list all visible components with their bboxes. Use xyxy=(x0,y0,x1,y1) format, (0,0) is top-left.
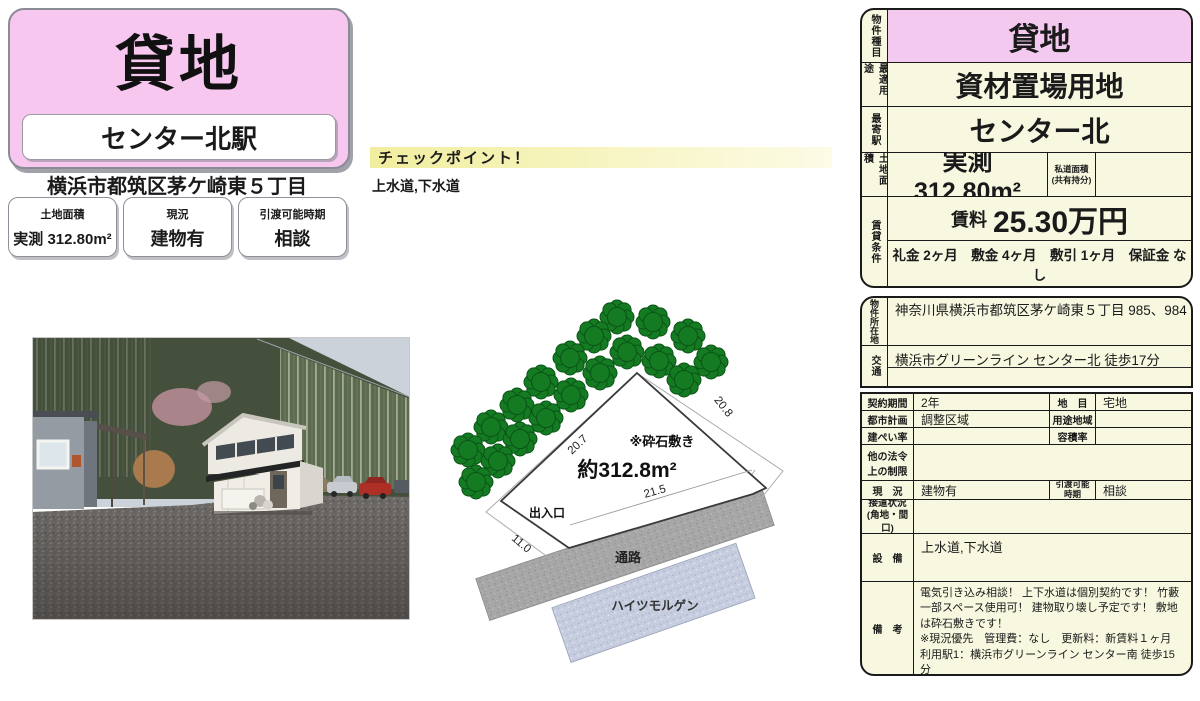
badge-value: 相談 xyxy=(239,225,346,251)
dark-car xyxy=(394,480,410,493)
road-label: 通路 xyxy=(615,550,642,565)
label-contract-period: 契約期間 xyxy=(862,394,914,411)
label-lease-terms: 賃貸条件 xyxy=(862,197,888,286)
badge-label: 引渡可能時期 xyxy=(239,206,346,222)
badge-land-area: 土地面積 実測 312.80m² xyxy=(8,197,117,257)
dim-sw: 11.0 xyxy=(509,532,533,555)
plan-area-label: 約312.8m² xyxy=(577,458,676,482)
badge-value: 実測 312.80m² xyxy=(9,228,116,249)
container-roof xyxy=(32,411,98,418)
value-rent: 賃料 25.30万円 xyxy=(888,197,1191,241)
label-handover: 引渡可能 時期 xyxy=(1050,481,1096,500)
value-nearest-station: センター北 xyxy=(888,107,1191,153)
property-type-banner: 貸地 センター北駅 xyxy=(8,8,350,169)
value-location: 神奈川県横浜市都筑区茅ケ崎東５丁目 985、984 xyxy=(888,298,1191,346)
detail-table-location: 物件所在地 神奈川県横浜市都筑区茅ケ崎東５丁目 985、984 交通 横浜市グリ… xyxy=(860,296,1193,388)
checkpoint-body: 上水道,下水道 xyxy=(372,176,460,196)
badge-label: 土地面積 xyxy=(9,206,116,222)
rent-label: 賃料 xyxy=(951,206,987,232)
lean-to xyxy=(300,461,323,508)
checkpoint-bar: チェックポイント！ xyxy=(370,147,832,168)
dim-ne: 20.8 xyxy=(711,394,734,419)
site-photo xyxy=(32,337,410,620)
value-facilities: 上水道,下水道 xyxy=(914,534,1191,582)
value-lease-terms: 礼金 2ヶ月 敷金 4ヶ月 敷引 1ヶ月 保証金 なし xyxy=(888,241,1191,286)
value-land-category: 宅地 xyxy=(1096,394,1191,411)
access-subrow-divider xyxy=(888,367,1191,368)
station-box: センター北駅 xyxy=(22,114,336,160)
badge-value: 建物有 xyxy=(124,225,231,251)
value-best-use: 資材置場用地 xyxy=(888,63,1191,107)
property-address: 横浜市都筑区茅ケ崎東５丁目 xyxy=(8,170,346,199)
value-access: 横浜市グリーンライン センター北 徒歩17分 xyxy=(888,346,1191,386)
label-land-category: 地 目 xyxy=(1050,394,1096,411)
rent-amount: 25.30万円 xyxy=(993,197,1128,241)
label-location: 物件所在地 xyxy=(862,298,888,346)
property-flyer: 貸地 センター北駅 横浜市都筑区茅ケ崎東５丁目 土地面積 実測 312.80m²… xyxy=(0,0,1200,701)
value-city-planning: 調整区域 xyxy=(914,411,1050,428)
plan-surface-label: ※砕石敷き xyxy=(630,434,695,449)
label-land-area: 土地面積 xyxy=(862,153,888,197)
value-current-state: 建物有 xyxy=(914,481,1050,500)
property-type-large: 貸地 xyxy=(10,16,348,103)
badge-handover: 引渡可能時期 相談 xyxy=(238,197,347,257)
label-property-type: 物件種目 xyxy=(862,10,888,63)
label-city-planning: 都市計画 xyxy=(862,411,914,428)
label-road-contact: 接道状況 (角地・間口) xyxy=(862,500,914,534)
autumn-tree xyxy=(133,450,175,488)
label-building-coverage: 建ぺい率 xyxy=(862,428,914,445)
site-photo-graphic xyxy=(32,337,410,620)
value-remarks: 電気引き込み相談！ 上下水道は個別契約です！ 竹藪一部スペース使用可！ 建物取り… xyxy=(914,582,1191,674)
blossom-tree xyxy=(197,381,231,403)
value-use-district xyxy=(1096,411,1191,428)
value-contract-period: 2年 xyxy=(914,394,1050,411)
value-private-road xyxy=(1096,153,1191,197)
label-floor-area-ratio: 容積率 xyxy=(1050,428,1096,445)
value-other-restrictions xyxy=(914,445,1191,481)
value-handover: 相談 xyxy=(1096,481,1191,500)
label-current-state: 現 況 xyxy=(862,481,914,500)
detail-table-main: 契約期間 2年 地 目 宅地 都市計画 調整区域 用途地域 建ぺい率 容積率 他… xyxy=(860,392,1193,676)
neighbor-building-label: ハイツモルゲン xyxy=(611,598,698,613)
value-building-coverage xyxy=(914,428,1050,445)
label-facilities: 設 備 xyxy=(862,534,914,582)
badge-current-state: 現況 建物有 xyxy=(123,197,232,257)
checkpoint-title: チェックポイント！ xyxy=(370,147,531,168)
value-road-contact xyxy=(914,500,1191,534)
label-use-district: 用途地域 xyxy=(1050,411,1096,428)
container-side xyxy=(84,421,97,507)
value-floor-area-ratio xyxy=(1096,428,1191,445)
plan-entrance-label: 出入口 xyxy=(529,505,565,520)
door-window xyxy=(273,475,284,489)
label-best-use: 最適用途 xyxy=(862,63,888,107)
label-nearest-station: 最寄駅 xyxy=(862,107,888,153)
label-private-road: 私道面積 (共有持分) xyxy=(1048,153,1096,197)
building-shadow xyxy=(212,511,312,515)
site-plan-graphic: 約312.8m² ※砕石敷き 出入口 20.7 20.8 21.5 11.0 通… xyxy=(440,283,860,683)
badge-label: 現況 xyxy=(124,206,231,222)
site-plan: 約312.8m² ※砕石敷き 出入口 20.7 20.8 21.5 11.0 通… xyxy=(440,283,860,683)
label-access: 交通 xyxy=(862,346,888,386)
label-remarks: 備 考 xyxy=(862,582,914,674)
label-other-restrictions: 他の法令 上の制限 xyxy=(862,445,914,481)
summary-table: 物件種目 最適用途 最寄駅 土地面積 賃貸条件 貸地 資材置場用地 センター北 … xyxy=(860,8,1193,288)
container-sign xyxy=(72,455,81,467)
value-land-area: 実測 312.80m² xyxy=(888,153,1048,197)
container-window xyxy=(38,441,68,468)
value-property-type: 貸地 xyxy=(888,10,1191,63)
